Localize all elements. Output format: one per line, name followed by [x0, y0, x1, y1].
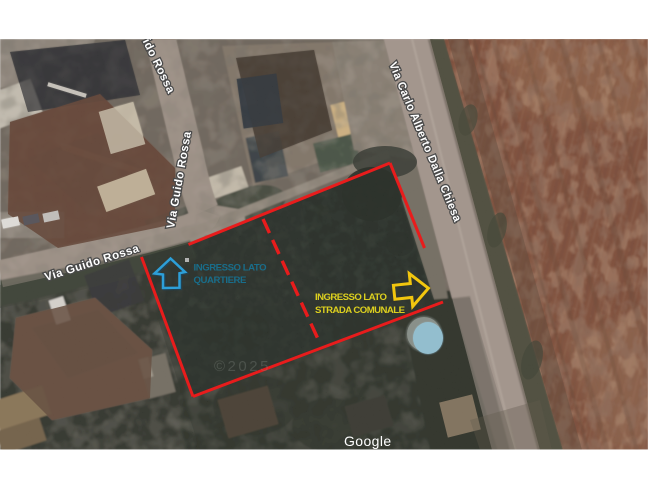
svg-text:INGRESSO LATO: INGRESSO LATO [315, 292, 387, 303]
svg-text:QUARTIERE: QUARTIERE [194, 275, 248, 286]
svg-text:STRADA COMUNALE: STRADA COMUNALE [315, 305, 406, 316]
svg-text:©2025: ©2025 [214, 358, 271, 375]
svg-text:INGRESSO LATO: INGRESSO LATO [194, 263, 268, 274]
svg-text:Google: Google [344, 433, 392, 449]
